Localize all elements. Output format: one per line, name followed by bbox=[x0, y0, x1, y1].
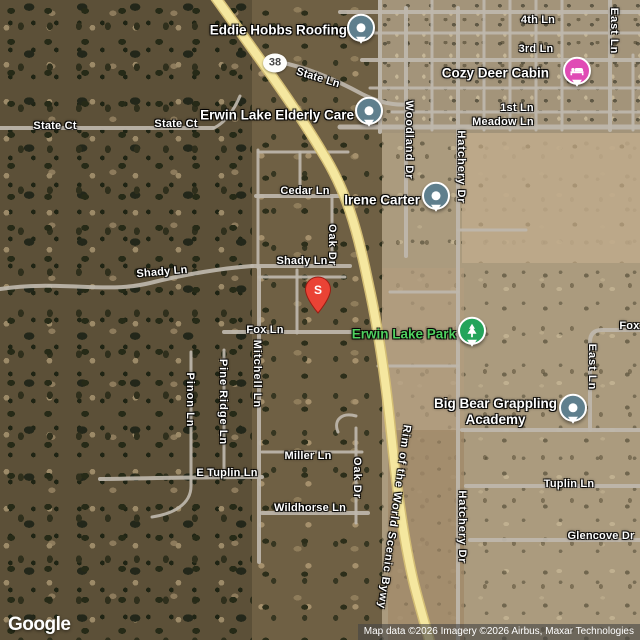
street-label-4th-ln: 4th Ln bbox=[521, 14, 555, 26]
street-label-woodland-dr: Woodland Dr bbox=[403, 100, 415, 179]
street-label-oak-dr-north: Oak Dr bbox=[326, 224, 338, 266]
satellite-map-canvas[interactable]: 38 State Ln 4th Ln East Ln 3rd Ln 1st Ln… bbox=[0, 0, 640, 640]
bed-icon bbox=[570, 66, 584, 76]
street-label-fox-ln-east: Fox Ln bbox=[619, 320, 640, 332]
poi-label-cozy-deer-cabin[interactable]: Cozy Deer Cabin bbox=[442, 66, 549, 81]
poi-label-big-bear-grappling-academy[interactable]: Big Bear Grappling Academy bbox=[434, 396, 557, 428]
street-label-east-ln-mid: East Ln bbox=[586, 344, 598, 391]
poi-label-erwin-lake-park[interactable]: Erwin Lake Park bbox=[352, 327, 456, 342]
street-label-e-tuplin-ln: E Tuplin Ln bbox=[196, 467, 257, 479]
poi-pin-erwin-lake-park[interactable] bbox=[458, 317, 486, 345]
google-logo[interactable]: Google bbox=[8, 614, 70, 636]
street-label-pinon-ln: Pinon Ln bbox=[184, 372, 196, 427]
poi-label-eddie-hobbs-roofing[interactable]: Eddie Hobbs Roofing bbox=[210, 23, 347, 38]
street-label-state-ct-east: State Ct bbox=[154, 118, 197, 130]
map-attribution: Map data ©2026 Imagery ©2026 Airbus, Max… bbox=[358, 624, 640, 640]
poi-pin-cozy-deer-cabin[interactable] bbox=[563, 57, 591, 85]
street-label-shady-ln-east: Shady Ln bbox=[276, 255, 327, 267]
tree-icon bbox=[466, 324, 478, 338]
street-label-meadow-ln: Meadow Ln bbox=[472, 116, 534, 128]
street-label-tuplin-ln: Tuplin Ln bbox=[544, 478, 594, 490]
red-s-marker[interactable]: S bbox=[304, 276, 332, 319]
route-38-shield: 38 bbox=[263, 54, 287, 73]
poi-label-line2: Academy bbox=[465, 412, 525, 427]
street-label-3rd-ln: 3rd Ln bbox=[519, 43, 554, 55]
marker-letter: S bbox=[304, 283, 332, 297]
poi-pin-big-bear-grappling-academy[interactable] bbox=[559, 394, 587, 422]
dot-icon bbox=[357, 23, 366, 32]
street-label-1st-ln: 1st Ln bbox=[500, 102, 534, 114]
poi-pin-irene-carter[interactable] bbox=[422, 182, 450, 210]
poi-pin-erwin-lake-elderly-care[interactable] bbox=[355, 97, 383, 125]
street-label-fox-ln-west: Fox Ln bbox=[246, 324, 283, 336]
roads-layer bbox=[0, 0, 640, 640]
poi-label-erwin-lake-elderly-care[interactable]: Erwin Lake Elderly Care bbox=[200, 108, 354, 123]
street-label-state-ct-west: State Ct bbox=[33, 120, 76, 132]
street-label-east-ln-north: East Ln bbox=[608, 8, 620, 55]
street-label-cedar-ln: Cedar Ln bbox=[280, 185, 329, 197]
street-label-wildhorse-ln: Wildhorse Ln bbox=[274, 502, 346, 514]
poi-label-irene-carter[interactable]: Irene Carter bbox=[344, 193, 420, 208]
street-label-oak-dr-south: Oak Dr bbox=[351, 457, 363, 499]
dot-icon bbox=[569, 403, 578, 412]
street-label-hatchery-dr-south: Hatchery Dr bbox=[456, 490, 468, 563]
street-label-mitchell-ln: Mitchell Ln bbox=[251, 340, 263, 408]
poi-label-line1: Big Bear Grappling bbox=[434, 396, 557, 411]
dot-icon bbox=[365, 106, 374, 115]
street-label-glencove-dr: Glencove Dr bbox=[567, 530, 634, 542]
street-label-hatchery-dr-north: Hatchery Dr bbox=[455, 130, 467, 203]
street-label-miller-ln: Miller Ln bbox=[284, 450, 331, 462]
dot-icon bbox=[432, 191, 441, 200]
poi-pin-eddie-hobbs-roofing[interactable] bbox=[347, 14, 375, 42]
street-label-pine-ridge-ln: Pine Ridge Ln bbox=[217, 359, 229, 445]
